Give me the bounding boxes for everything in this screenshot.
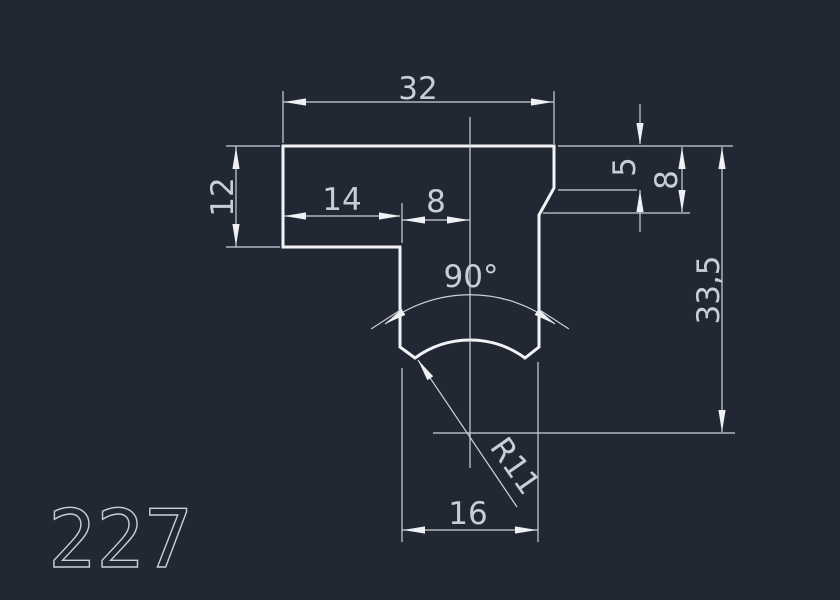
dimension-stem-center-offset: 8 [402,184,470,224]
dim-left-offset-value: 14 [322,182,361,218]
dimension-left-thickness: 12 [205,146,280,247]
angle-ray [371,309,402,329]
dim-overall-width-value: 32 [398,71,437,107]
dim-stem-center-offset-value: 8 [426,184,446,220]
dim-stem-width-value: 16 [448,496,487,532]
dimension-overall-width: 32 [283,71,554,144]
dim-groove-angle-value: 90° [444,259,499,295]
dim-left-thickness-value: 12 [205,177,241,216]
dimension-left-offset: 14 [284,182,402,243]
drawing-canvas[interactable]: 32 12 14 8 5 [0,0,840,600]
angle-ray [538,309,569,329]
cad-viewport: 32 12 14 8 5 [0,0,840,600]
dim-groove-radius-value: R11 [482,431,546,502]
drawing-number: 227 [48,493,193,586]
leader-arrow [418,360,433,380]
dim-right-thickness-value: 8 [649,170,685,190]
dim-chamfer-depth-value: 5 [607,157,643,177]
dim-overall-height-value: 33,5 [691,255,727,324]
part-outline [283,146,554,358]
dimension-right-thickness: 8 [543,147,690,213]
